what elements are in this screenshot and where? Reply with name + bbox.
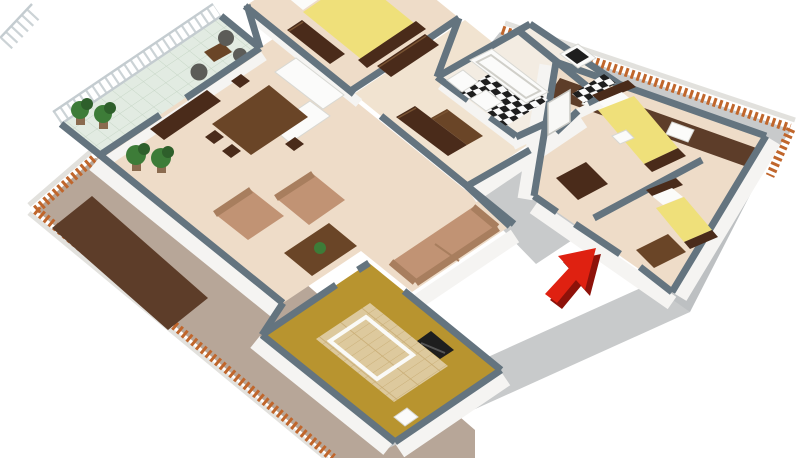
plant-foliage [81, 98, 93, 110]
plant-foliage-indoor [162, 146, 174, 158]
balcony-chair-2 [191, 64, 208, 81]
plant-foliage [104, 102, 116, 114]
coffee-table-plant [314, 242, 326, 254]
floor-plan-canvas [0, 0, 800, 458]
plant-foliage-indoor [138, 143, 150, 155]
balcony-chair-1 [218, 30, 234, 46]
floor-plan-image [0, 0, 800, 458]
